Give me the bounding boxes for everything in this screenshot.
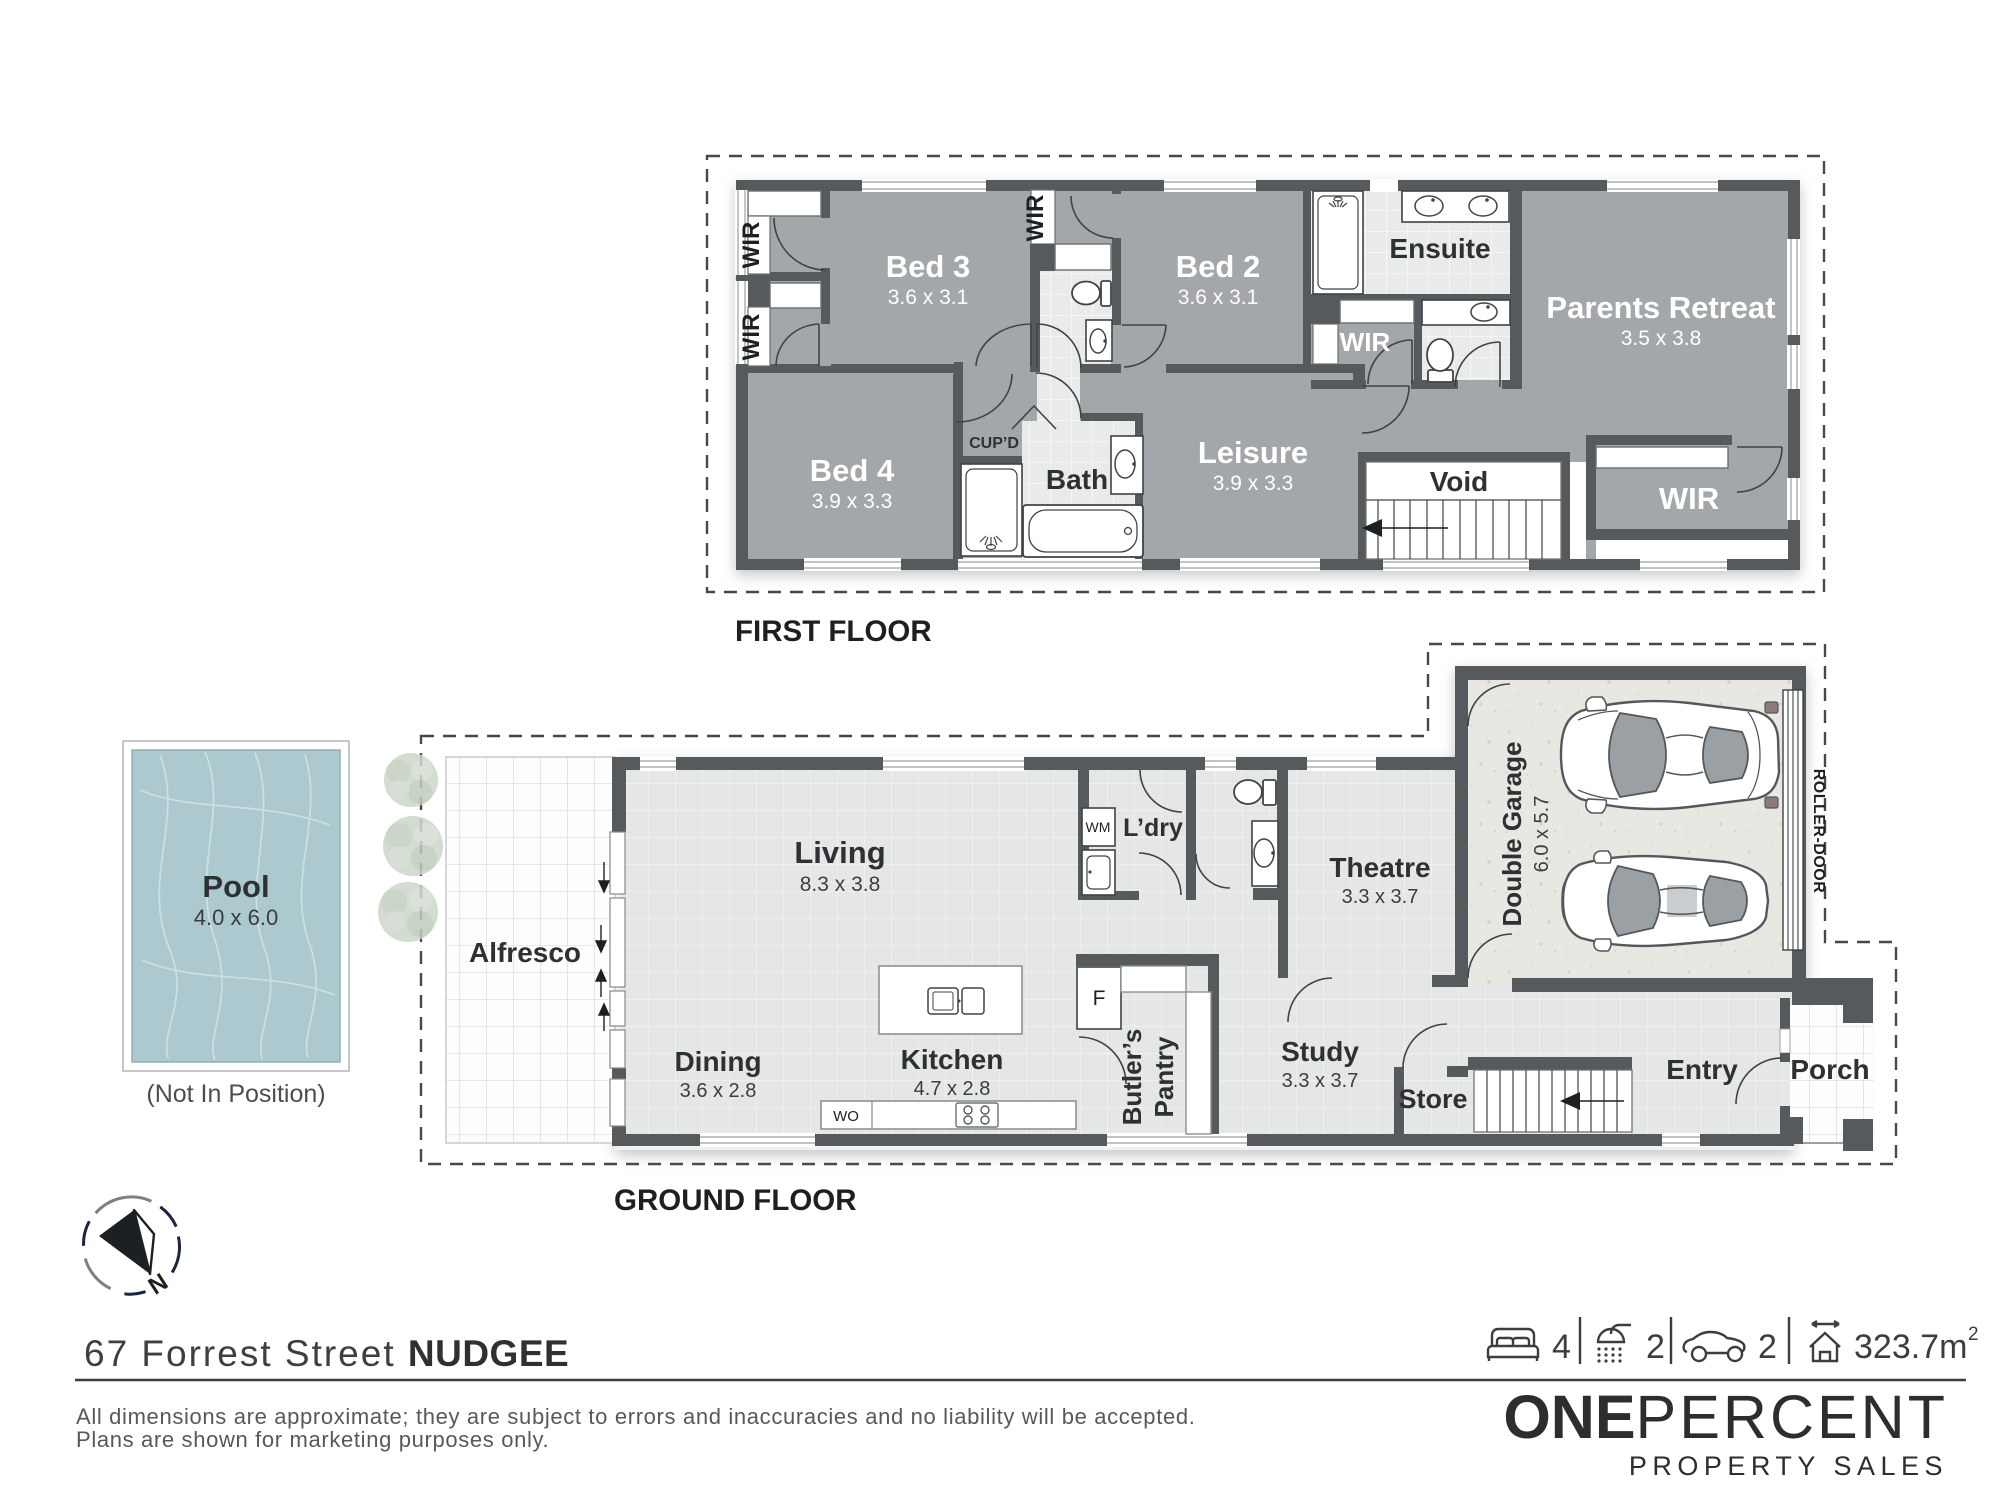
svg-text:Study: Study [1281,1036,1359,1067]
svg-text:Bed 4: Bed 4 [810,453,895,488]
svg-text:Porch: Porch [1790,1054,1869,1085]
svg-text:Alfresco: Alfresco [469,937,581,968]
svg-text:(Not In Position): (Not In Position) [146,1080,325,1108]
svg-text:Void: Void [1430,466,1489,497]
svg-text:WIR: WIR [1659,481,1719,516]
svg-text:WO: WO [833,1108,859,1125]
svg-text:2: 2 [1646,1328,1665,1366]
svg-text:GROUND FLOOR: GROUND FLOOR [614,1184,857,1217]
svg-text:Ensuite: Ensuite [1389,233,1490,264]
svg-text:Theatre: Theatre [1329,852,1430,883]
svg-text:3.3 x 3.7: 3.3 x 3.7 [1342,886,1419,908]
svg-text:Bed 3: Bed 3 [886,249,970,284]
svg-text:Double Garage: Double Garage [1497,742,1527,927]
svg-text:Kitchen: Kitchen [901,1044,1004,1075]
svg-text:WM: WM [1086,819,1111,835]
svg-text:3.6 x 3.1: 3.6 x 3.1 [888,286,969,309]
svg-text:F: F [1093,987,1106,1010]
svg-text:2: 2 [1968,1324,1979,1345]
svg-text:67 Forrest Street NUDGEE: 67 Forrest Street NUDGEE [84,1333,569,1374]
svg-text:Entry: Entry [1666,1054,1738,1085]
svg-text:8.3 x 3.8: 8.3 x 3.8 [800,873,881,896]
svg-text:3.9 x 3.3: 3.9 x 3.3 [1213,472,1294,495]
svg-text:WIR: WIR [1340,327,1391,357]
svg-text:323.7m: 323.7m [1854,1328,1967,1366]
svg-text:3.9 x 3.3: 3.9 x 3.3 [812,490,893,513]
svg-text:Pool: Pool [202,869,269,904]
svg-text:WIR: WIR [738,222,765,269]
svg-text:3.6 x 2.8: 3.6 x 2.8 [680,1080,757,1102]
svg-text:ONEPERCENT: ONEPERCENT [1503,1383,1948,1451]
svg-text:All dimensions are approximate: All dimensions are approximate; they are… [76,1404,1196,1429]
svg-text:4: 4 [1552,1328,1571,1366]
svg-text:Bath: Bath [1046,464,1108,495]
svg-text:Store: Store [1398,1084,1467,1114]
svg-text:ROLLER-DOOR: ROLLER-DOOR [1810,769,1827,894]
svg-text:L’dry: L’dry [1123,814,1183,842]
svg-text:Butler’s: Butler’s [1117,1029,1147,1126]
svg-text:Dining: Dining [674,1046,761,1077]
svg-text:Pantry: Pantry [1149,1036,1179,1117]
svg-text:4.7 x 2.8: 4.7 x 2.8 [914,1078,991,1100]
svg-text:Parents Retreat: Parents Retreat [1546,290,1775,325]
svg-text:CUP’D: CUP’D [969,435,1019,452]
svg-text:Leisure: Leisure [1198,435,1308,470]
svg-text:WIR: WIR [1022,195,1049,242]
svg-text:3.5 x 3.8: 3.5 x 3.8 [1621,327,1702,350]
svg-text:3.6 x 3.1: 3.6 x 3.1 [1178,286,1259,309]
svg-text:FIRST FLOOR: FIRST FLOOR [735,615,932,648]
svg-text:2: 2 [1758,1328,1777,1366]
svg-text:6.0 x 5.7: 6.0 x 5.7 [1531,796,1553,873]
svg-text:Living: Living [794,835,885,870]
svg-text:PROPERTY SALES: PROPERTY SALES [1629,1451,1948,1481]
svg-text:Bed 2: Bed 2 [1176,249,1260,284]
svg-text:4.0 x 6.0: 4.0 x 6.0 [194,905,278,930]
svg-text:WIR: WIR [738,314,765,361]
svg-text:3.3 x 3.7: 3.3 x 3.7 [1282,1070,1359,1092]
svg-text:Plans are shown for marketing: Plans are shown for marketing purposes o… [76,1427,549,1452]
